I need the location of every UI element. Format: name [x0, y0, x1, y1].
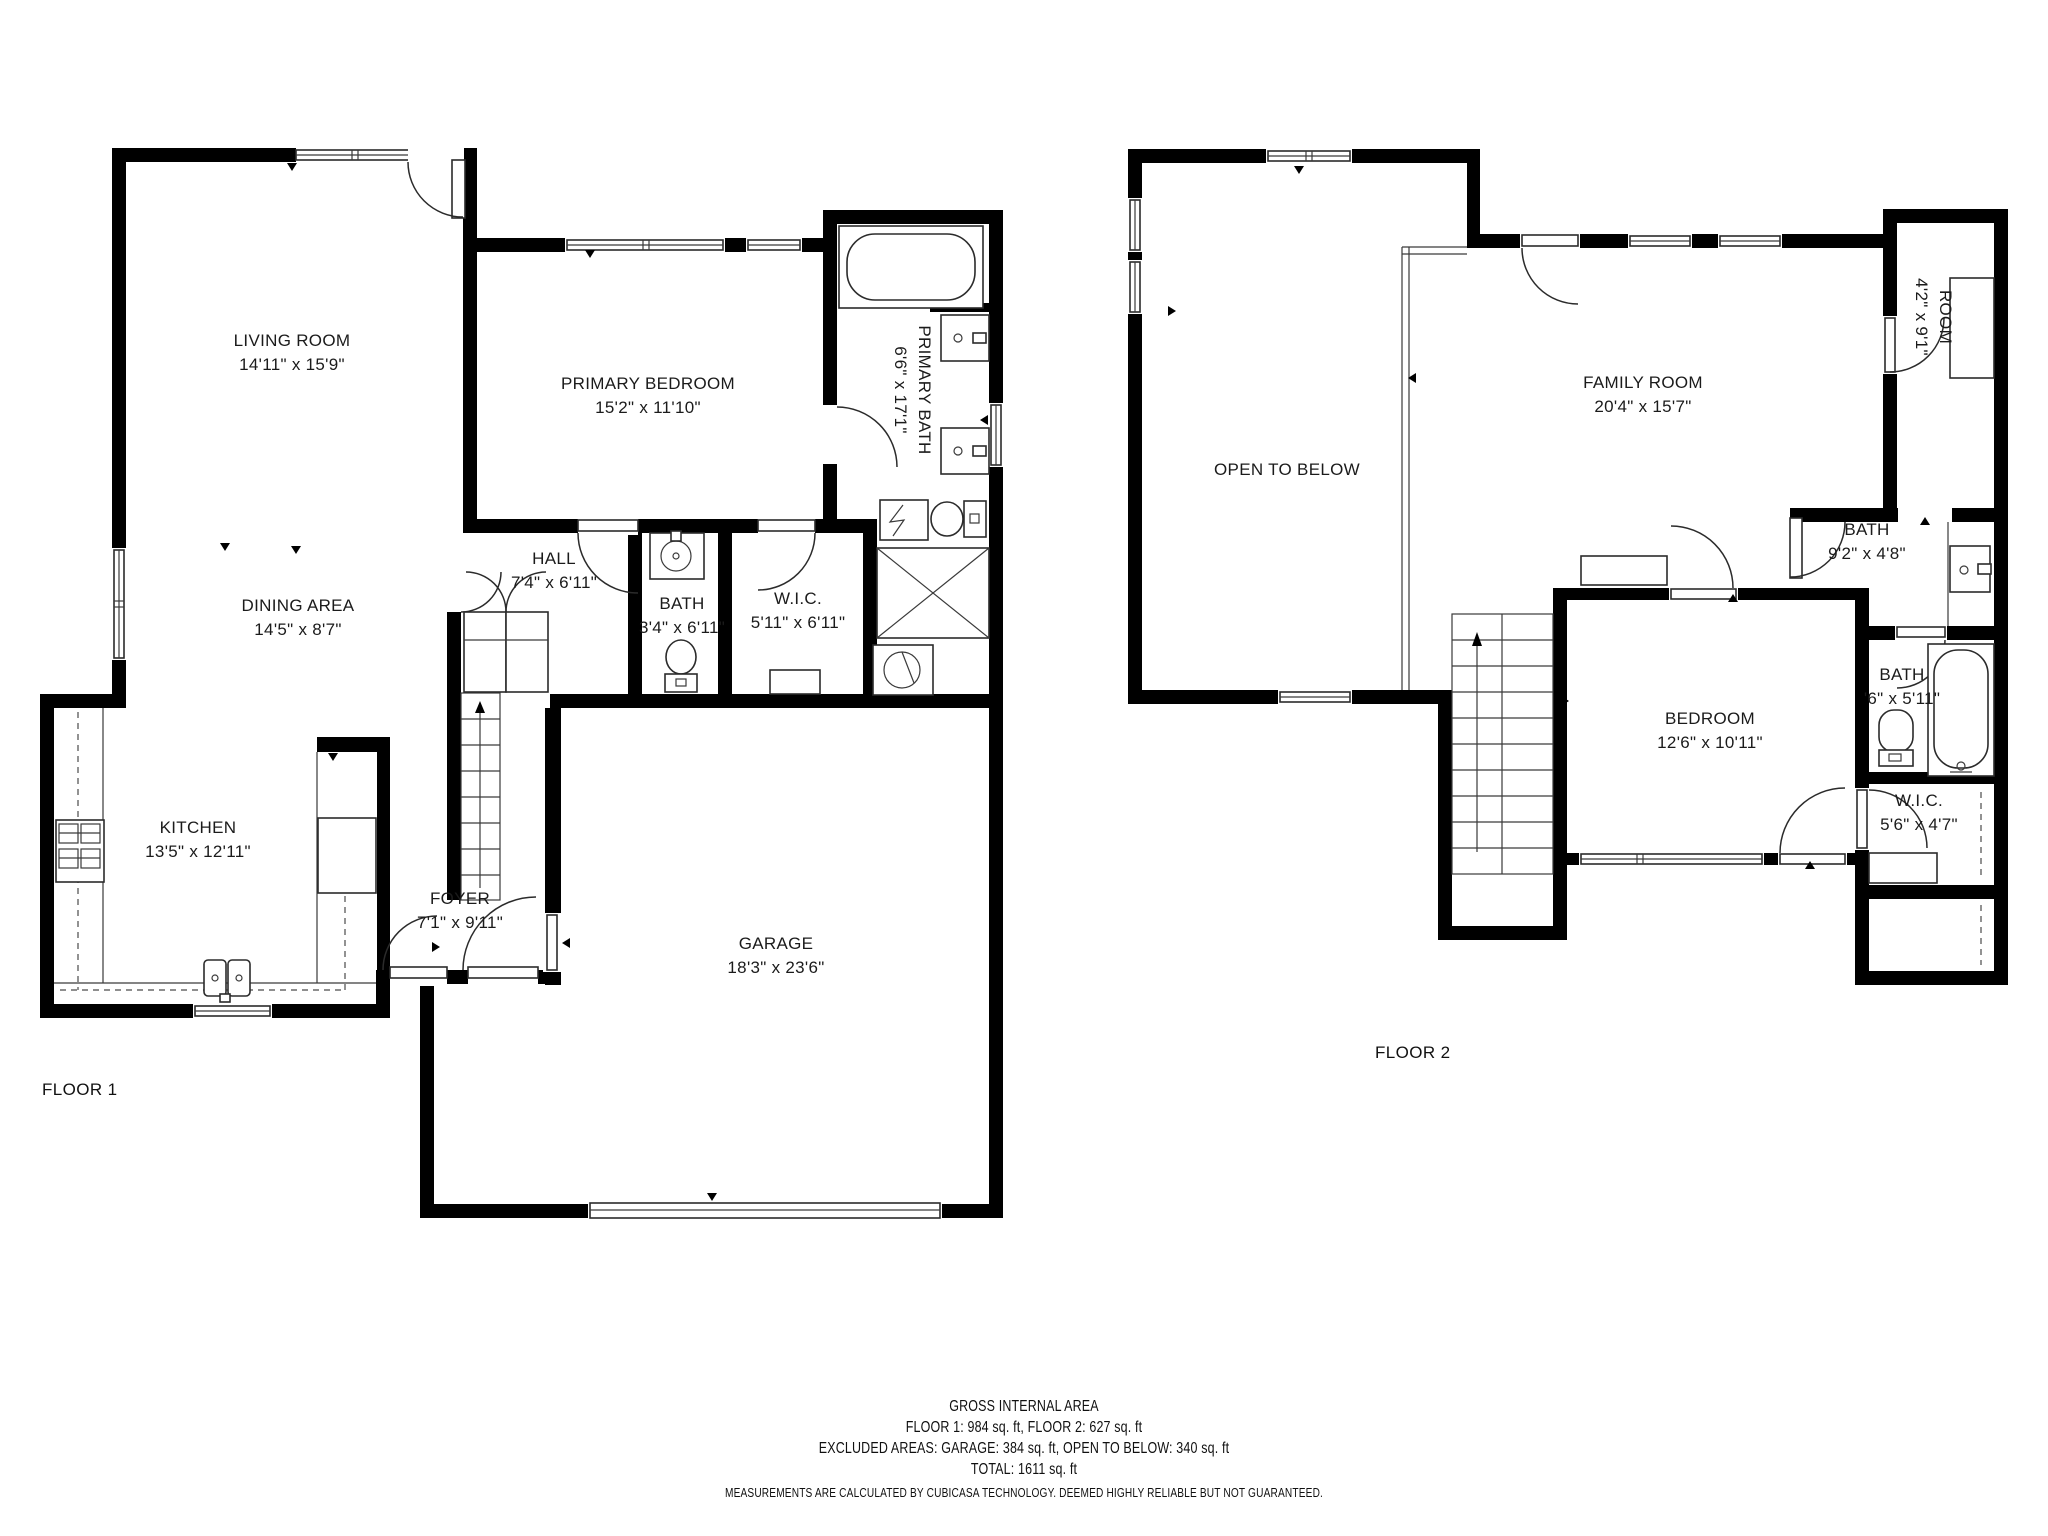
- floor2-title: FLOOR 2: [1375, 1043, 1451, 1063]
- room-label-primary-bath: PRIMARY BATH 6'6" x 17'1": [888, 325, 936, 454]
- room-label-wic-floor2: W.I.C. 5'6" x 4'7": [1880, 789, 1958, 837]
- floor1-title: FLOOR 1: [42, 1080, 118, 1100]
- room-label-living-room: LIVING ROOM 14'11" x 15'9": [234, 329, 351, 377]
- stove-icon: [56, 820, 104, 882]
- room-label-bath-upper: BATH 9'2" x 4'8": [1828, 518, 1906, 566]
- footer-floor-areas: FLOOR 1: 984 sq. ft, FLOOR 2: 627 sq. ft: [225, 1417, 1822, 1438]
- room-label-foyer: FOYER 7'1" x 9'11": [417, 887, 503, 935]
- room-label-primary-bedroom: PRIMARY BEDROOM 15'2" x 11'10": [561, 372, 735, 420]
- fridge-icon: [318, 818, 376, 893]
- gross-internal-area-summary: GROSS INTERNAL AREA FLOOR 1: 984 sq. ft,…: [225, 1396, 1822, 1503]
- open-to-below-railing: [1402, 247, 1467, 690]
- room-label-wic-floor1: W.I.C. 5'11" x 6'11": [751, 587, 846, 635]
- floor2-stairs: [1452, 614, 1553, 874]
- room-label-dining-area: DINING AREA 14'5" x 8'7": [242, 594, 355, 642]
- room-label-open-to-below: OPEN TO BELOW: [1214, 458, 1360, 482]
- footer-title: GROSS INTERNAL AREA: [225, 1396, 1822, 1417]
- floor2-windows: [1126, 147, 1782, 867]
- footer-disclaimer: MEASUREMENTS ARE CALCULATED BY CUBICASA …: [225, 1482, 1822, 1503]
- floor1-stairs: [461, 693, 500, 900]
- room-label-bedroom: BEDROOM 12'6" x 10'11": [1657, 707, 1763, 755]
- room-label-garage: GARAGE 18'3" x 23'6": [727, 932, 824, 980]
- room-label-bath-floor1: BATH 3'4" x 6'11": [639, 592, 725, 640]
- room-label-hall: HALL 7'4" x 6'11": [511, 547, 597, 595]
- floorplan-page: LIVING ROOM 14'11" x 15'9" DINING AREA 1…: [0, 0, 2048, 1536]
- room-label-family-room: FAMILY ROOM 20'4" x 15'7": [1583, 371, 1703, 419]
- room-label-kitchen: KITCHEN 13'5" x 12'11": [145, 816, 251, 864]
- room-label-room: ROOM 4'2" x 9'1": [1909, 278, 1957, 356]
- primary-bath-fixtures: [839, 226, 989, 695]
- kitchen-sink-icon: [204, 960, 250, 1002]
- floorplan-canvas: [0, 0, 2048, 1536]
- footer-total-area: TOTAL: 1611 sq. ft: [225, 1459, 1822, 1480]
- room-label-bath-lower: BATH '6" x 5'11": [1864, 663, 1940, 711]
- floor1-markers: [118, 163, 988, 1201]
- footer-excluded-areas: EXCLUDED AREAS: GARAGE: 384 sq. ft, OPEN…: [225, 1438, 1822, 1459]
- foyer-closet: [464, 612, 548, 692]
